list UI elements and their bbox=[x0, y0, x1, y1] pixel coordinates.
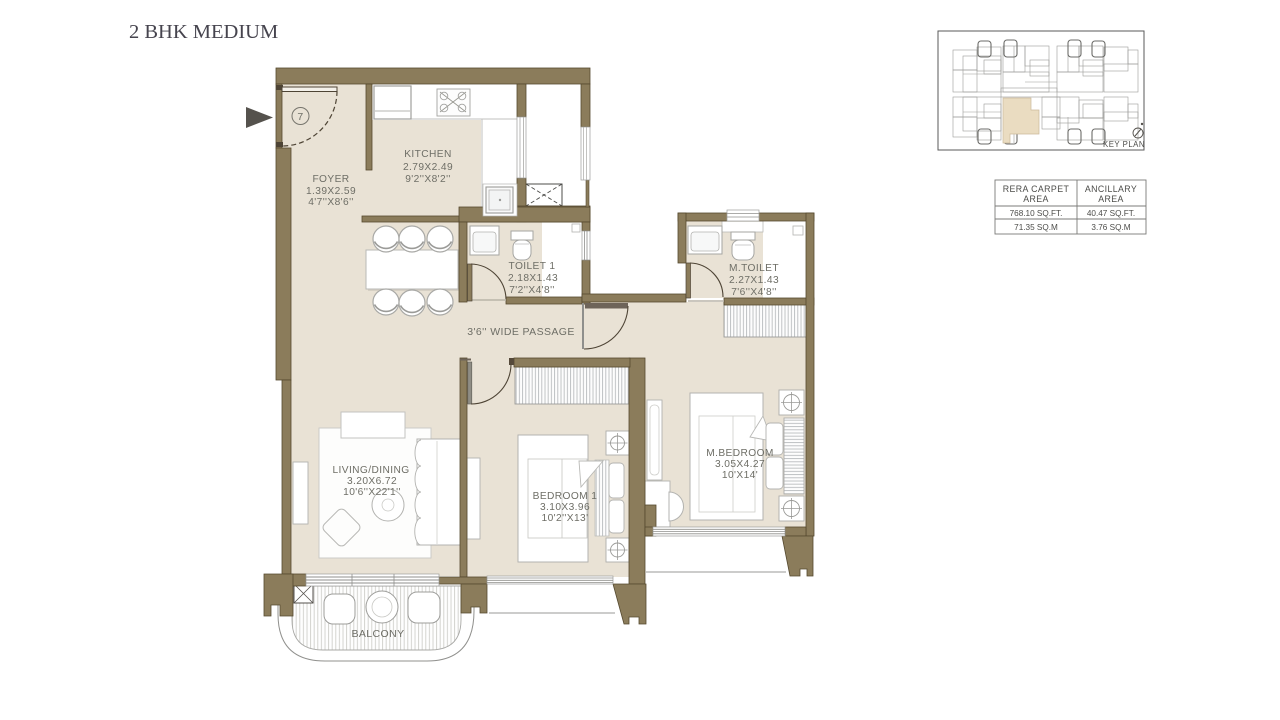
svg-text:768.10 SQ.FT.: 768.10 SQ.FT. bbox=[1010, 209, 1063, 218]
svg-text:2.27X1.43: 2.27X1.43 bbox=[729, 275, 779, 286]
svg-text:AREA: AREA bbox=[1098, 194, 1124, 204]
svg-text:RERA CARPET: RERA CARPET bbox=[1003, 184, 1070, 194]
svg-text:TOILET 1: TOILET 1 bbox=[509, 261, 556, 272]
svg-text:FOYER: FOYER bbox=[312, 174, 349, 185]
svg-text:KITCHEN: KITCHEN bbox=[404, 149, 452, 160]
svg-text:ANCILLARY: ANCILLARY bbox=[1085, 184, 1137, 194]
svg-text:2.18X1.43: 2.18X1.43 bbox=[508, 273, 558, 284]
svg-text:40.47 SQ.FT.: 40.47 SQ.FT. bbox=[1087, 209, 1135, 218]
svg-text:10'6''X22'1'': 10'6''X22'1'' bbox=[343, 487, 401, 498]
svg-text:7: 7 bbox=[297, 111, 303, 123]
svg-text:10'X14': 10'X14' bbox=[722, 470, 758, 481]
svg-text:4'7''X8'6'': 4'7''X8'6'' bbox=[308, 197, 354, 208]
svg-text:3.10X3.96: 3.10X3.96 bbox=[540, 502, 590, 513]
svg-text:BEDROOM 1: BEDROOM 1 bbox=[533, 491, 598, 502]
svg-text:3.20X6.72: 3.20X6.72 bbox=[347, 476, 397, 487]
svg-text:KEY PLAN: KEY PLAN bbox=[1103, 140, 1145, 149]
svg-text:1.39X2.59: 1.39X2.59 bbox=[306, 186, 356, 197]
svg-text:AREA: AREA bbox=[1023, 194, 1049, 204]
svg-text:7'2''X4'8'': 7'2''X4'8'' bbox=[509, 285, 555, 296]
svg-text:9'2''X8'2'': 9'2''X8'2'' bbox=[405, 174, 451, 185]
svg-text:2 BHK MEDIUM: 2 BHK MEDIUM bbox=[129, 21, 278, 43]
svg-text:LIVING/DINING: LIVING/DINING bbox=[332, 465, 409, 476]
svg-text:3.76 SQ.M: 3.76 SQ.M bbox=[1091, 223, 1130, 232]
svg-text:M.TOILET: M.TOILET bbox=[729, 263, 779, 274]
svg-text:10'2''X13': 10'2''X13' bbox=[542, 513, 589, 524]
svg-text:3.05X4.27: 3.05X4.27 bbox=[715, 459, 765, 470]
svg-text:2.79X2.49: 2.79X2.49 bbox=[403, 162, 453, 173]
svg-text:BALCONY: BALCONY bbox=[352, 628, 405, 640]
svg-text:7'6''X4'8'': 7'6''X4'8'' bbox=[731, 287, 777, 298]
svg-text:M.BEDROOM: M.BEDROOM bbox=[706, 448, 774, 459]
svg-text:71.35 SQ.M: 71.35 SQ.M bbox=[1014, 223, 1058, 232]
svg-text:3'6'' WIDE PASSAGE: 3'6'' WIDE PASSAGE bbox=[467, 326, 575, 338]
